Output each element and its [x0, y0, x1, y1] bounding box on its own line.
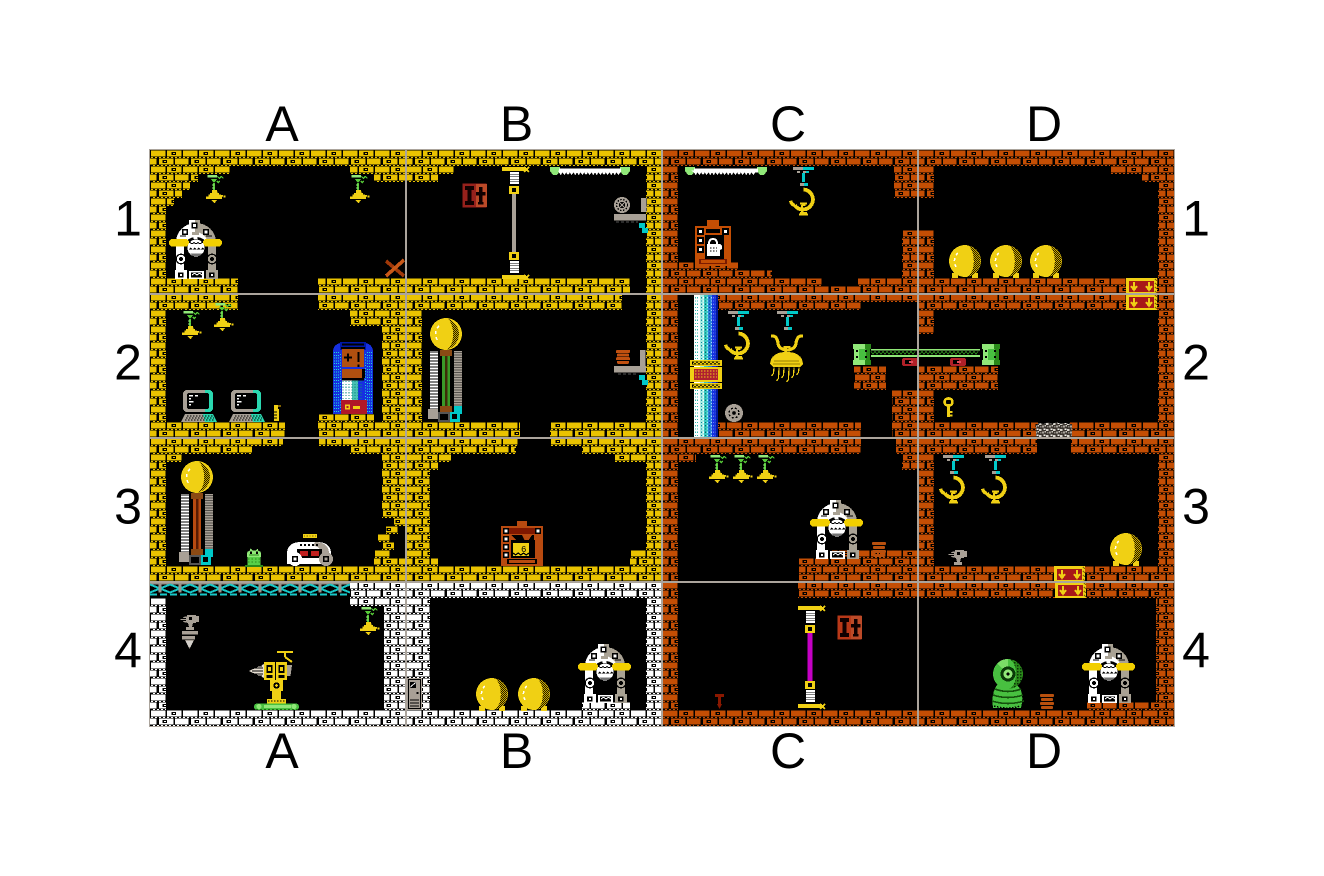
svg-text:2: 2: [114, 335, 142, 391]
svg-text:A: A: [265, 723, 299, 779]
svg-text:4: 4: [114, 623, 142, 679]
svg-text:1: 1: [1182, 191, 1210, 247]
svg-text:B: B: [500, 723, 533, 779]
svg-text:6: 6: [521, 545, 526, 555]
svg-text:D: D: [1026, 96, 1062, 152]
svg-text:C: C: [770, 723, 806, 779]
svg-text:D: D: [1026, 723, 1062, 779]
svg-text:2: 2: [1182, 335, 1210, 391]
svg-text:A: A: [265, 96, 299, 152]
svg-text:3: 3: [114, 479, 142, 535]
svg-text:C: C: [770, 96, 806, 152]
svg-text:4: 4: [1182, 623, 1210, 679]
svg-text:B: B: [500, 96, 533, 152]
svg-text:1: 1: [114, 191, 142, 247]
svg-text:3: 3: [1182, 479, 1210, 535]
